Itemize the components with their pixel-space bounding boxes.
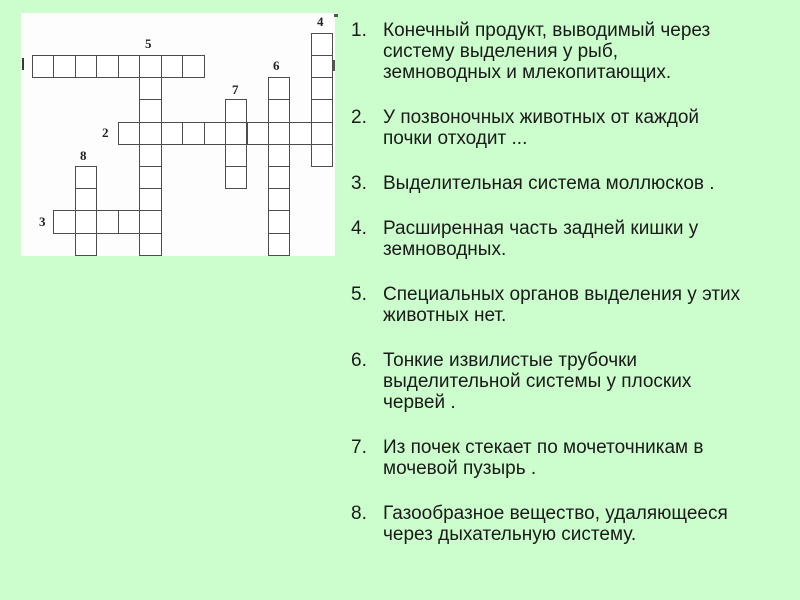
clipped-edge-mark (334, 14, 338, 17)
crossword-cell[interactable] (139, 99, 161, 122)
word-number-label: 8 (80, 148, 87, 164)
crossword-cell[interactable] (225, 122, 247, 145)
crossword-cell[interactable] (182, 55, 204, 78)
clue-text: Специальных органов выделения у этихживо… (383, 284, 740, 326)
crossword-cell[interactable] (247, 122, 269, 145)
clue-number: 8. (351, 503, 367, 524)
crossword-cell[interactable] (268, 188, 290, 211)
crossword-cell[interactable] (161, 122, 183, 145)
crossword-cell[interactable] (225, 166, 247, 189)
crossword-cell[interactable] (268, 144, 290, 167)
clue-number: 6. (351, 350, 367, 371)
crossword-cell[interactable] (75, 233, 97, 256)
clue-number: 1. (351, 20, 367, 41)
crossword-cell[interactable] (268, 166, 290, 189)
crossword-cell[interactable] (118, 210, 140, 233)
word-number-label: 5 (145, 36, 152, 52)
crossword-cell[interactable] (53, 210, 75, 233)
crossword-cell[interactable] (75, 210, 97, 233)
clue-item: 4.Расширенная часть задней кишки уземнов… (351, 218, 800, 260)
word-number-label-clipped (22, 58, 24, 70)
clue-number: 2. (351, 107, 367, 128)
clue-number: 5. (351, 284, 367, 305)
crossword-cell[interactable] (32, 55, 54, 78)
crossword-cell[interactable] (268, 210, 290, 233)
crossword-cell[interactable] (311, 55, 333, 78)
clue-number: 3. (351, 173, 367, 194)
crossword-cell[interactable] (311, 99, 333, 122)
crossword-cell[interactable] (182, 122, 204, 145)
crossword-cell[interactable] (139, 210, 161, 233)
clue-item: 7.Из почек стекает по мочеточникам вмоче… (351, 437, 800, 479)
clue-text: Из почек стекает по мочеточникам вмочево… (383, 437, 703, 479)
clue-text: Расширенная часть задней кишки уземновод… (383, 218, 698, 260)
crossword-cell[interactable] (139, 122, 161, 145)
clue-text: Конечный продукт, выводимый черезсистему… (383, 20, 710, 83)
crossword-cell[interactable] (139, 188, 161, 211)
clue-item: 1.Конечный продукт, выводимый черезсисте… (351, 20, 800, 83)
clue-item: 6.Тонкие извилистые трубочкивыделительно… (351, 350, 800, 413)
word-number-label: 4 (317, 14, 324, 30)
crossword-cell[interactable] (268, 99, 290, 122)
crossword-cell[interactable] (311, 33, 333, 56)
clue-item: 8.Газообразное вещество, удаляющеесячере… (351, 503, 800, 545)
word-number-label: 7 (232, 82, 239, 98)
clue-item: 2.У позвоночных животных от каждойпочки … (351, 107, 800, 149)
word-number-label: 6 (273, 58, 280, 74)
clipped-edge-mark (333, 60, 335, 71)
crossword-cell[interactable] (311, 144, 333, 167)
clue-number: 7. (351, 437, 367, 458)
crossword-cell[interactable] (225, 144, 247, 167)
word-number-label: 3 (39, 214, 46, 230)
crossword-cell[interactable] (161, 55, 183, 78)
clue-number: 4. (351, 218, 367, 239)
crossword-cell[interactable] (225, 99, 247, 122)
crossword-cell[interactable] (204, 122, 226, 145)
crossword-cell[interactable] (75, 55, 97, 78)
crossword-cell[interactable] (311, 122, 333, 145)
crossword-cell[interactable] (118, 55, 140, 78)
crossword-cell[interactable] (96, 210, 118, 233)
clue-text: У позвоночных животных от каждойпочки от… (383, 107, 699, 149)
clue-text: Тонкие извилистые трубочкивыделительной … (383, 350, 691, 413)
crossword-cell[interactable] (139, 166, 161, 189)
crossword-cell[interactable] (268, 233, 290, 256)
crossword-cell[interactable] (268, 122, 290, 145)
crossword-cell[interactable] (139, 144, 161, 167)
clue-item: 3.Выделительная система моллюсков . (351, 173, 800, 194)
crossword-board: 2345678 (21, 13, 335, 256)
crossword-cell[interactable] (75, 188, 97, 211)
clue-item: 5.Специальных органов выделения у этихжи… (351, 284, 800, 326)
crossword-cell[interactable] (139, 233, 161, 256)
crossword-cell[interactable] (53, 55, 75, 78)
clue-text: Выделительная система моллюсков . (383, 173, 715, 194)
clue-text: Газообразное вещество, удаляющеесячерез … (383, 503, 728, 545)
crossword-cell[interactable] (96, 55, 118, 78)
crossword-cell[interactable] (289, 122, 311, 145)
crossword-cell[interactable] (311, 77, 333, 100)
crossword-cell[interactable] (118, 122, 140, 145)
crossword-cell[interactable] (139, 55, 161, 78)
clue-list: 1.Конечный продукт, выводимый черезсисте… (351, 20, 800, 569)
crossword-cell[interactable] (75, 166, 97, 189)
word-number-label: 2 (102, 125, 109, 141)
crossword-cell[interactable] (139, 77, 161, 100)
slide-background: { "slide": { "background_color": "#ccfdc… (0, 0, 800, 600)
crossword-cell[interactable] (268, 77, 290, 100)
